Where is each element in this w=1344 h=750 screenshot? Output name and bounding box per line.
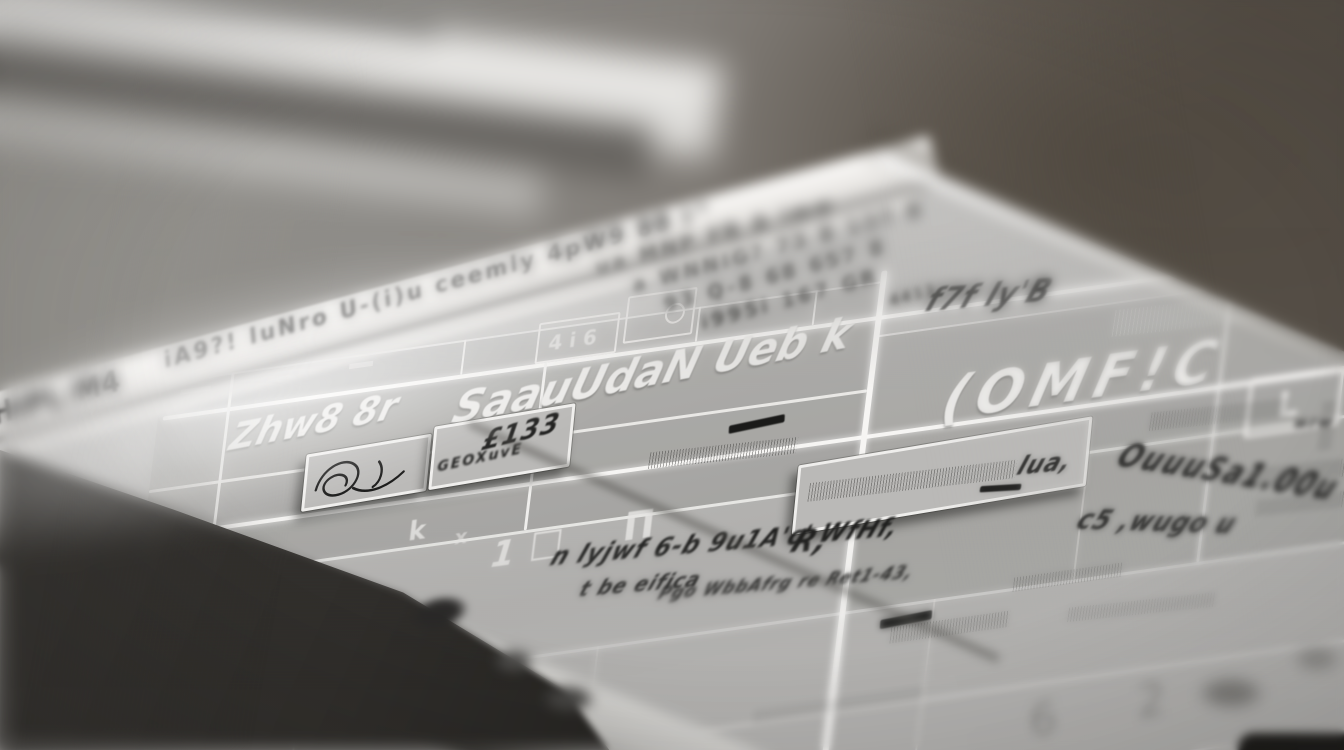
micro-print-line <box>807 460 1017 502</box>
printed-glyph: x <box>453 523 469 549</box>
ink-dash <box>979 484 1021 493</box>
ink-blot <box>540 684 596 714</box>
smudge <box>1196 676 1266 710</box>
printed-glyph: 1 <box>489 532 517 576</box>
ink-blot <box>492 648 536 674</box>
micro-print-line <box>1067 592 1217 622</box>
tail-scribble: lua, <box>1013 445 1077 481</box>
micro-print-line <box>753 686 923 724</box>
handwriting: c5 ,wugo u <box>1071 504 1242 541</box>
tick-box-label: 4 i 6 <box>547 324 598 355</box>
handwriting: wrw <box>1292 411 1336 432</box>
photo-of-form-on-desk: 4 i 6 Zhw8 8r SaauUdaN Ueb k (OMF!C L f7… <box>0 0 1344 750</box>
dark-object-corner <box>1238 732 1344 750</box>
smudge <box>1292 646 1342 672</box>
